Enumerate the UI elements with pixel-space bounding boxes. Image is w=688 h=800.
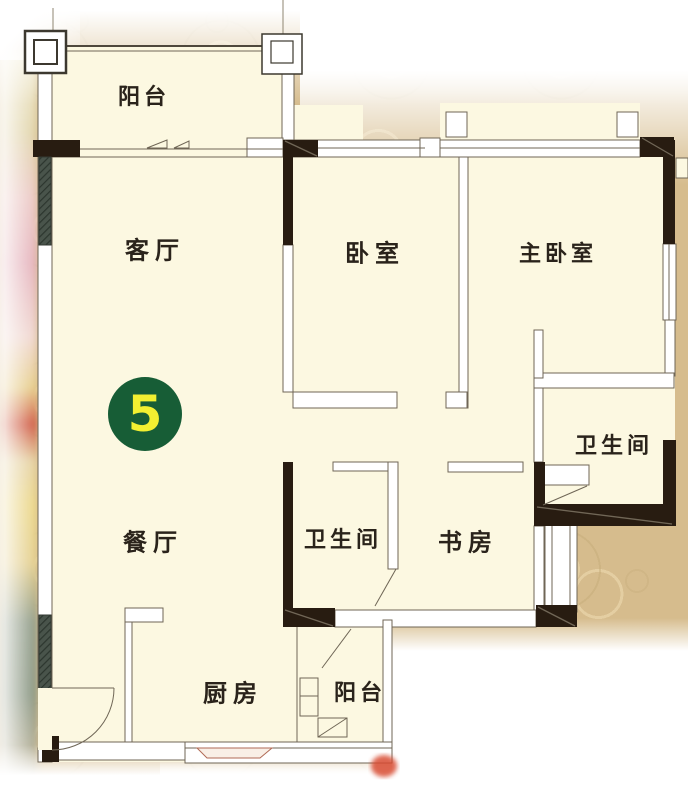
window-sill-mark [197,748,272,758]
study-bay-window [545,518,577,612]
room-label-master-bedroom: 主卧室 [515,236,597,268]
room-label-study: 书房 [432,523,498,558]
floorplan-canvas: 阳台 客厅 卧室 主卧室 卫生间 餐厅 卫生间 书房 厨房 阳台 5 [0,0,688,800]
rendering-red-detail [371,755,397,777]
room-label-dining-room: 餐厅 [117,523,183,558]
unit-number-badge: 5 [108,377,182,451]
room-label-bathroom-left: 卫生间 [300,522,382,554]
room-label-balcony-bottom: 阳台 [330,675,386,707]
sliding-door-step [247,138,283,157]
room-label-bathroom-right: 卫生间 [571,428,653,460]
room-label-kitchen: 厨房 [197,674,263,709]
balcony-fixture [300,678,318,716]
room-label-balcony-top: 阳台 [114,79,170,111]
room-label-living-room: 客厅 [119,231,185,266]
bedroom-divider-wall [459,157,468,408]
room-label-bedroom: 卧室 [339,234,405,269]
unit-number: 5 [128,385,163,443]
